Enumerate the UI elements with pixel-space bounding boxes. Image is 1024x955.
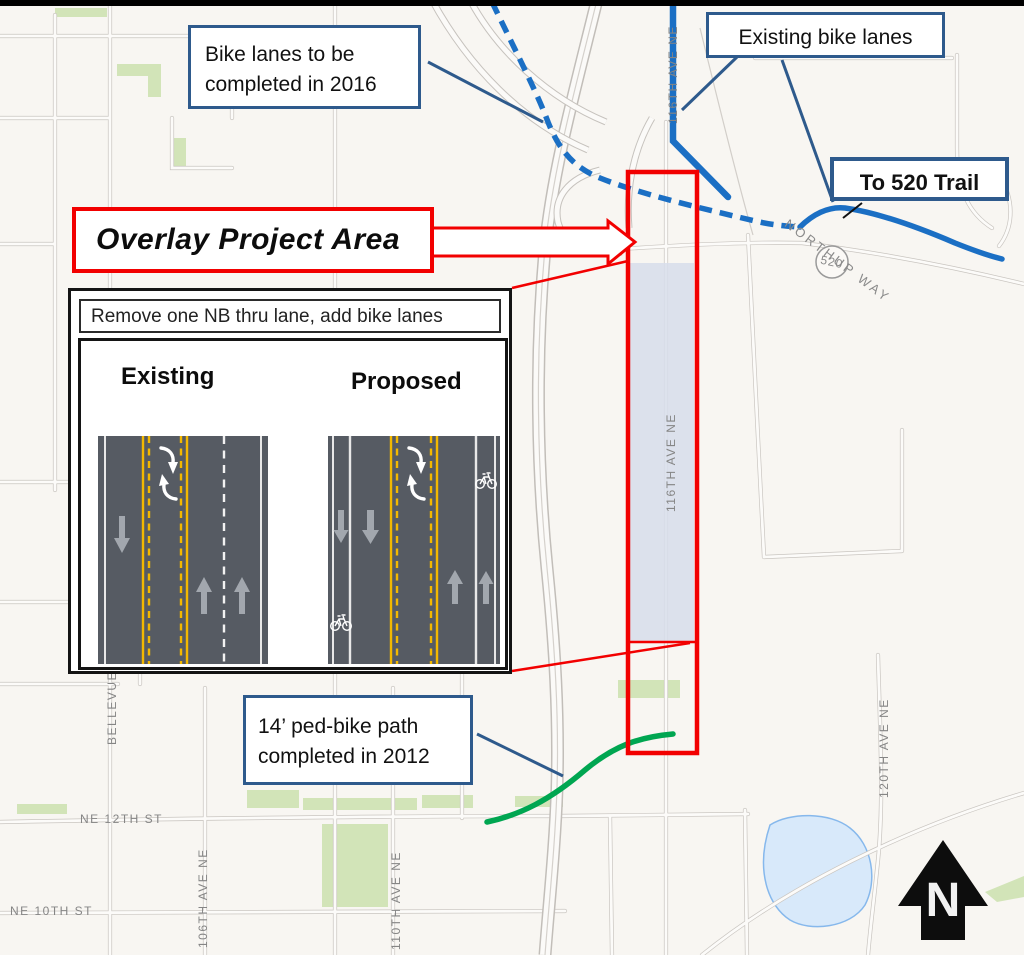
callout-to-520-trail: To 520 Trail <box>830 157 1009 201</box>
label-bellevue: BELLEVUE <box>105 667 119 745</box>
leader-existing-bike-lanes-2 <box>782 60 833 202</box>
label-120th-ave-ne: 120TH AVE NE <box>877 698 891 798</box>
existing-label: Existing <box>121 363 214 391</box>
faint-road <box>700 28 753 235</box>
label-ne-10th-st: NE 10TH ST <box>10 904 93 918</box>
label-106th-ave-ne: 106TH AVE NE <box>196 848 210 948</box>
label-116th-ave-ne-north: 116TH AVE NE <box>666 24 680 124</box>
bike-project-map-figure: 520 N NE 12TH ST NE 10TH ST 106TH AVE <box>0 0 1024 955</box>
lane-diagram-panel: Remove one NB thru lane, add bike lanes … <box>68 288 512 674</box>
callout-existing-bike-lanes: Existing bike lanes <box>706 12 945 58</box>
callout-bike-lanes-2016: Bike lanes to be completed in 2016 <box>188 25 421 109</box>
lane-diagram-body: Existing Proposed <box>78 338 508 670</box>
overlay-project-arrow <box>434 221 635 264</box>
pond <box>764 816 872 927</box>
proposed-label: Proposed <box>351 368 462 396</box>
north-label: N <box>926 874 961 927</box>
label-ne-12th-st: NE 12TH ST <box>80 812 163 826</box>
label-110th-ave-ne: 110TH AVE NE <box>389 850 403 950</box>
freeway-ramps <box>432 0 652 252</box>
existing-roadway-diagram <box>98 436 268 664</box>
callout-ped-bike-path: 14’ ped-bike path completed in 2012 <box>243 695 473 785</box>
top-border-bar <box>0 0 1024 6</box>
leader-ped-bike-path <box>477 734 563 776</box>
ped-bike-path-route <box>487 734 673 822</box>
label-116th-ave-ne-project: 116TH AVE NE <box>664 412 678 512</box>
proposed-roadway-diagram <box>328 436 500 664</box>
callout-overlay-project-area: Overlay Project Area <box>72 207 434 273</box>
north-arrow: N <box>898 840 988 940</box>
project-area-shading <box>630 263 694 642</box>
overlay-project-area-title: Overlay Project Area <box>76 223 400 257</box>
lane-diagram-header: Remove one NB thru lane, add bike lanes <box>79 299 501 333</box>
